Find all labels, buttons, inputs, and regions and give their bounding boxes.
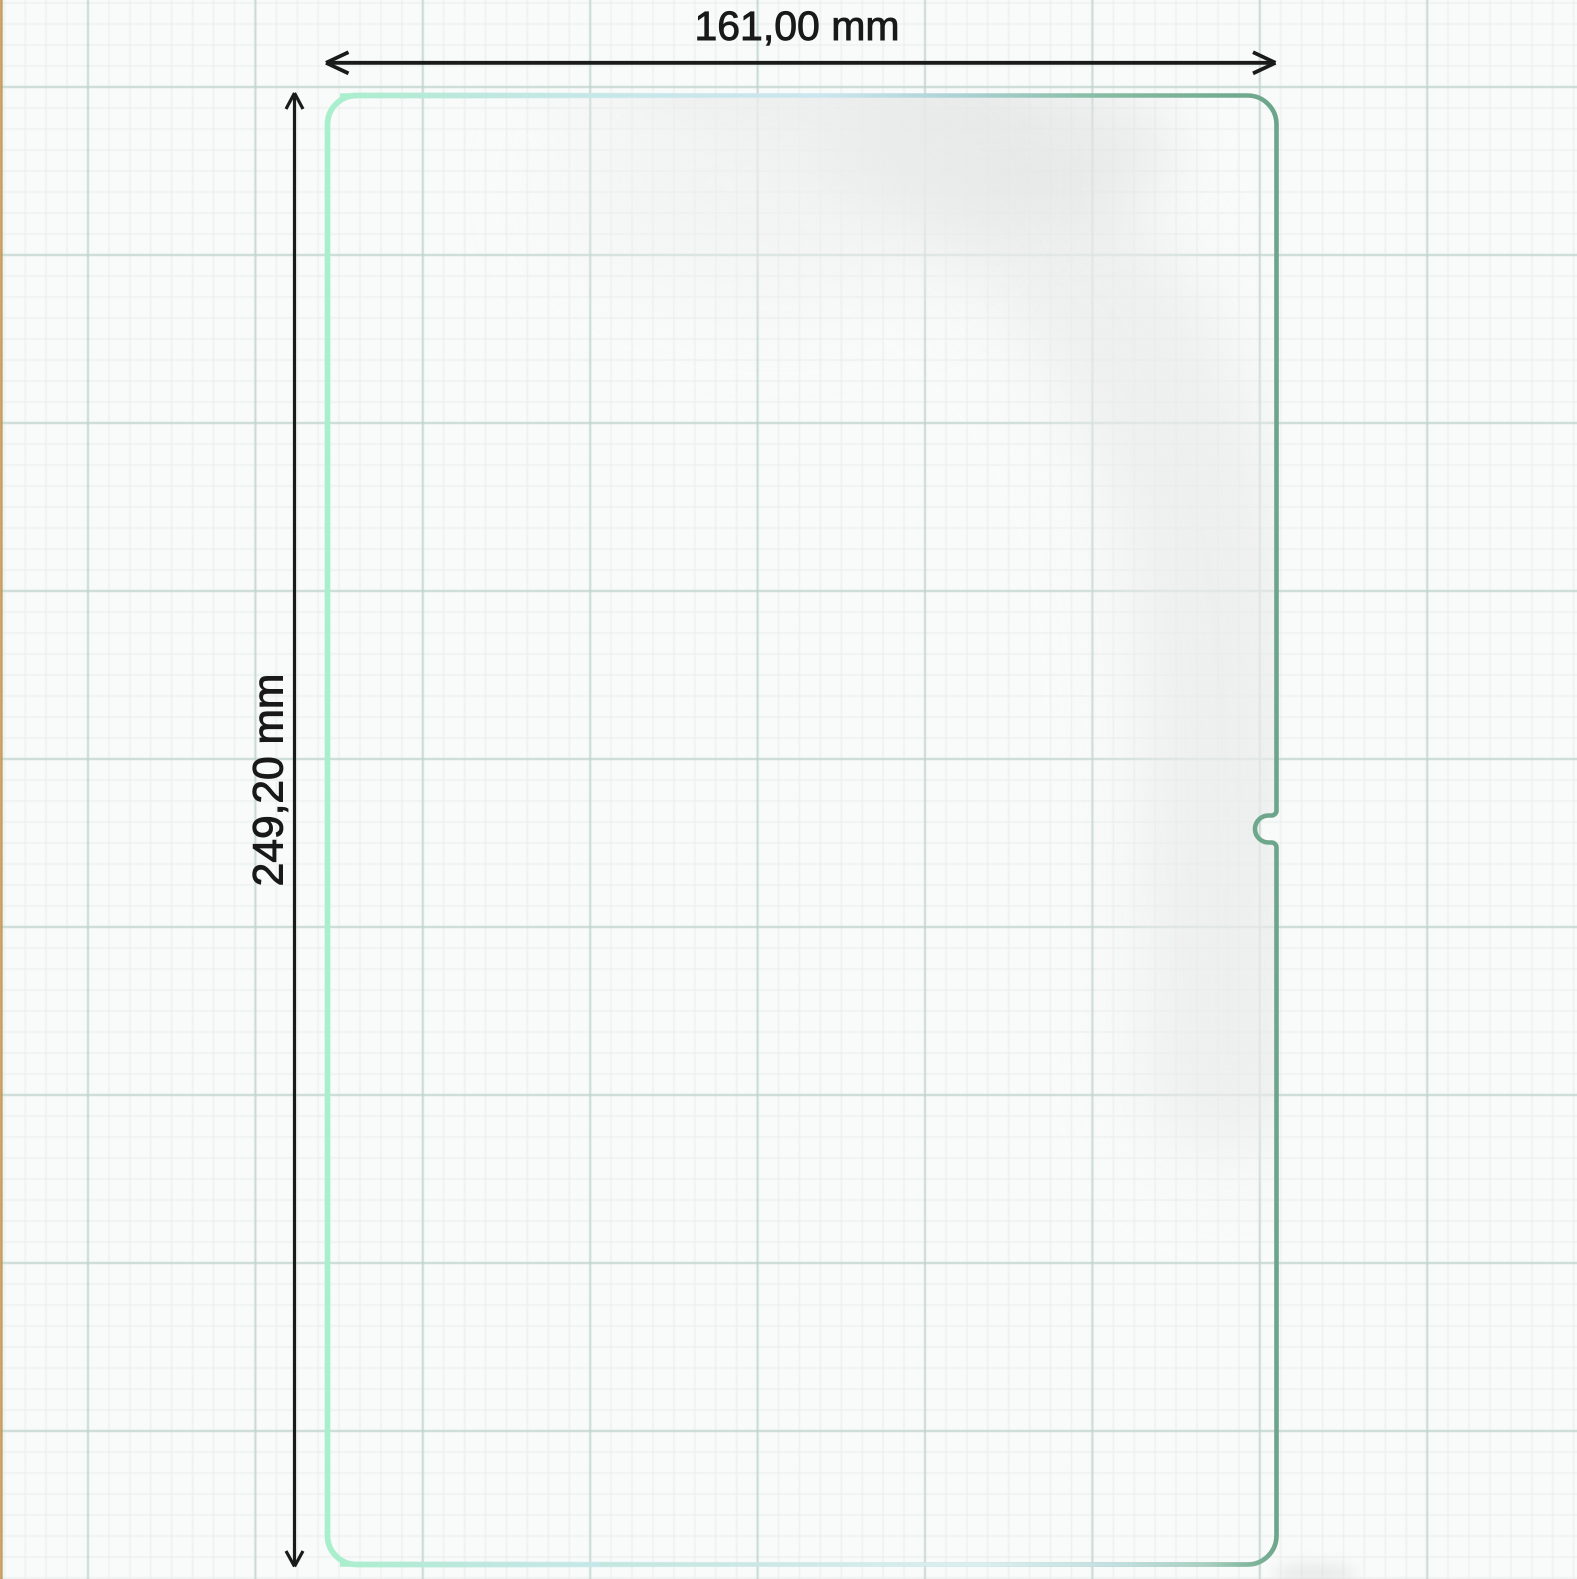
svg-text:249,20 mm: 249,20 mm	[246, 674, 293, 887]
svg-text:161,00 mm: 161,00 mm	[694, 3, 899, 49]
